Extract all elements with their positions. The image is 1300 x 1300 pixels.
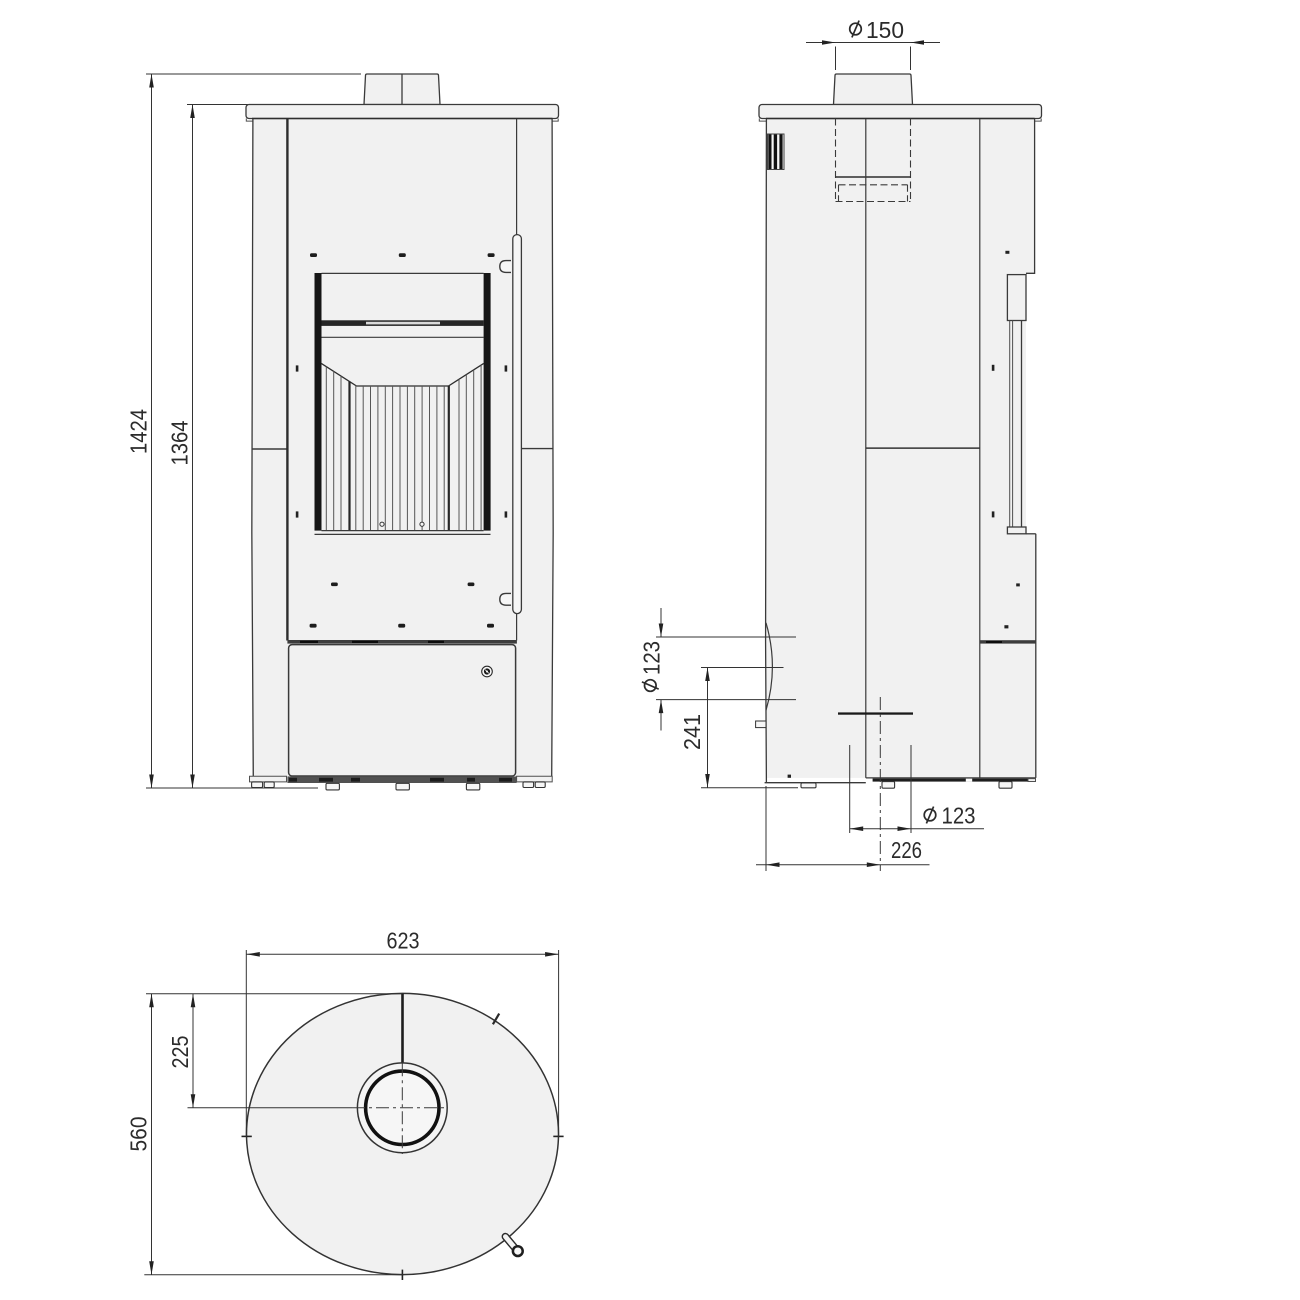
svg-text:226: 226 xyxy=(891,837,922,863)
svg-text:1364: 1364 xyxy=(167,420,193,465)
svg-text:150: 150 xyxy=(866,17,904,43)
svg-text:1424: 1424 xyxy=(126,409,152,454)
svg-text:241: 241 xyxy=(679,714,705,750)
svg-text:123: 123 xyxy=(639,641,665,675)
svg-text:623: 623 xyxy=(387,928,420,954)
svg-text:225: 225 xyxy=(167,1036,193,1069)
svg-text:560: 560 xyxy=(126,1117,152,1152)
svg-text:123: 123 xyxy=(942,803,976,829)
